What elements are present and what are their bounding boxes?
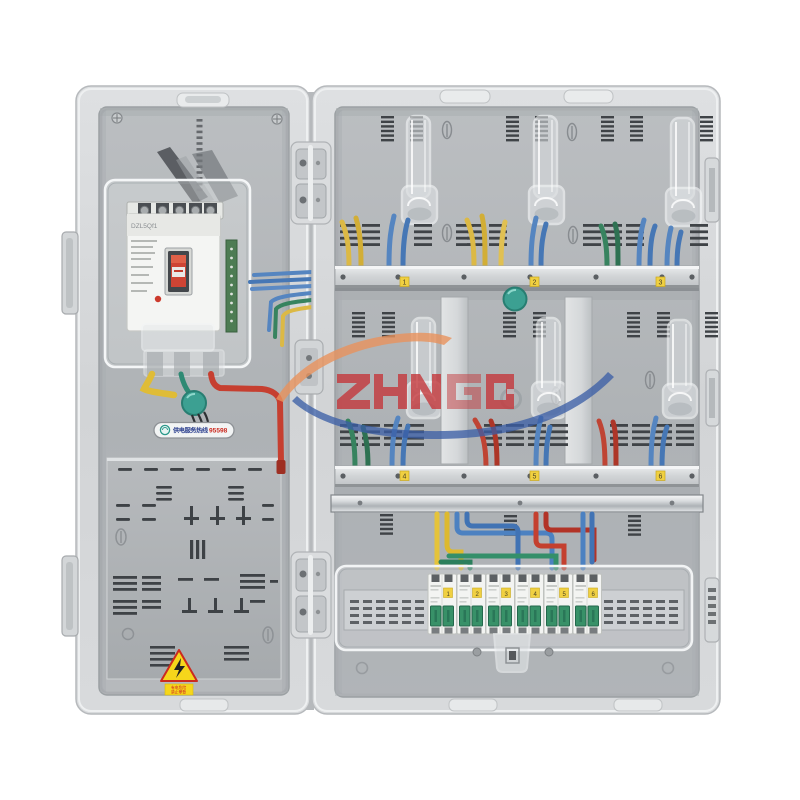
svg-text:1: 1 [403, 280, 407, 287]
svg-text:2: 2 [533, 280, 537, 287]
svg-text:95598: 95598 [209, 428, 228, 435]
svg-text:4: 4 [403, 474, 407, 481]
svg-text:供电服务热线: 供电服务热线 [172, 427, 209, 435]
svg-text:3: 3 [659, 280, 663, 287]
svg-text:禁止攀登: 禁止攀登 [171, 690, 186, 695]
svg-text:有电危险: 有电危险 [171, 685, 186, 690]
svg-text:5: 5 [533, 474, 537, 481]
svg-text:DZL5Qf1: DZL5Qf1 [131, 223, 158, 230]
svg-text:6: 6 [659, 474, 663, 481]
